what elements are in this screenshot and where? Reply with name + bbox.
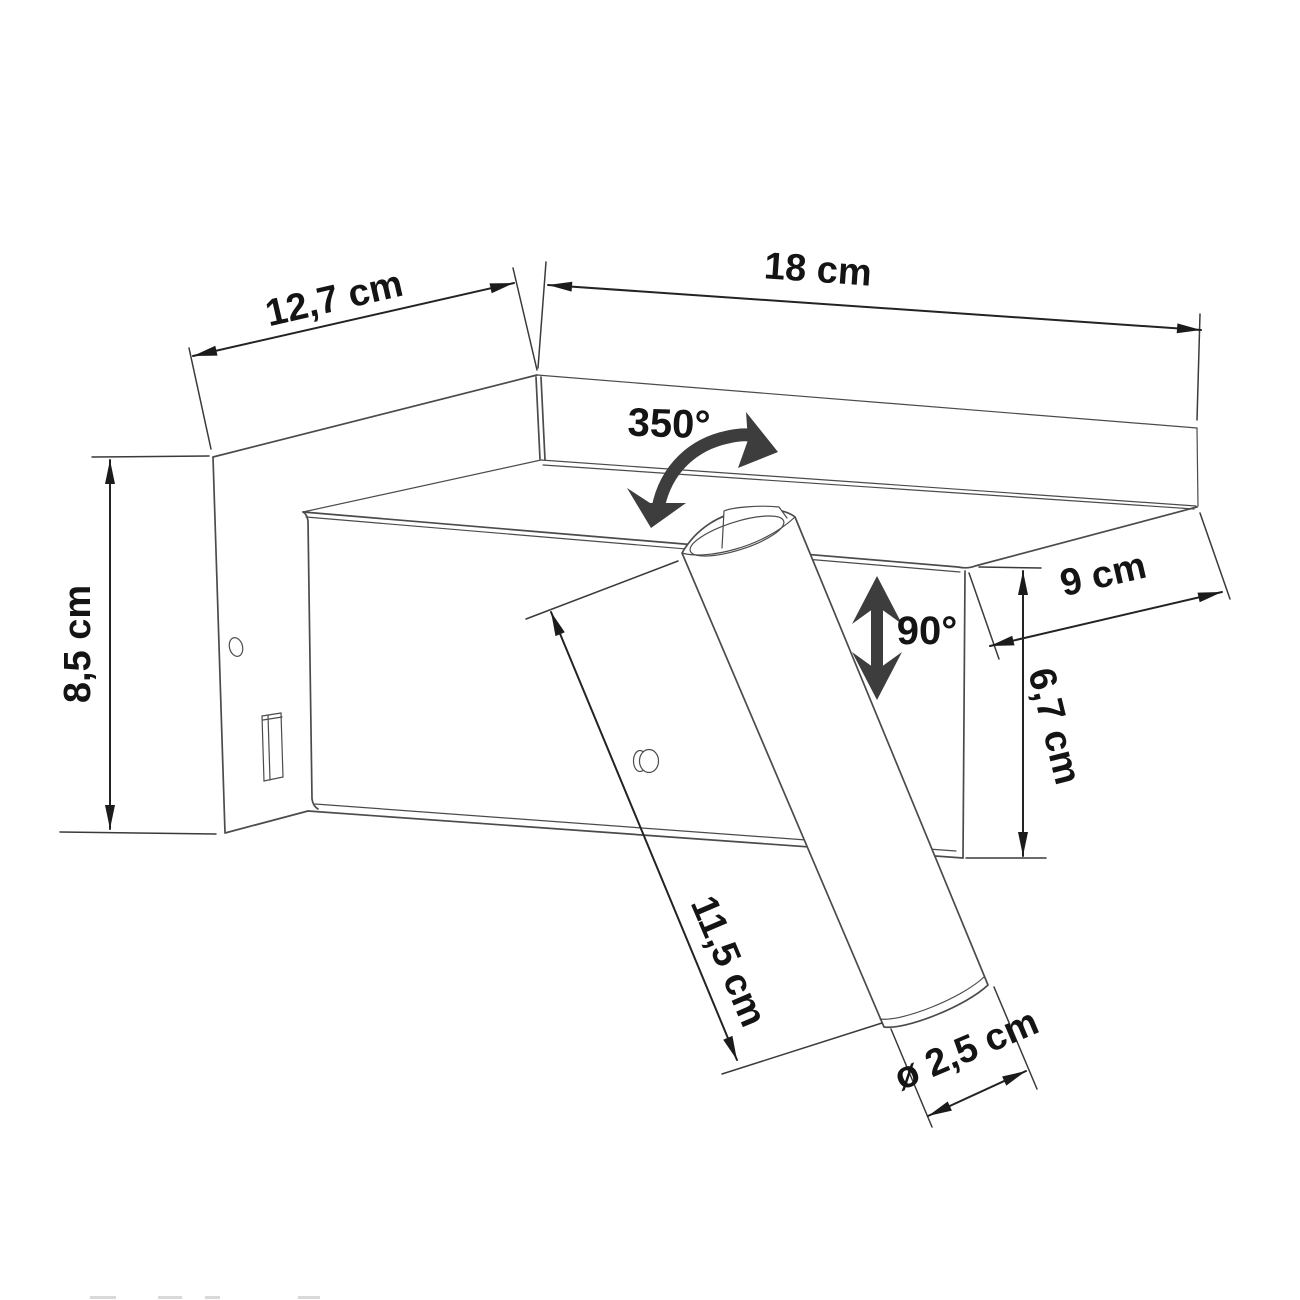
shelf-front-edge-inner — [306, 517, 960, 572]
shelf-depth-label: 9 cm — [1056, 545, 1150, 605]
back-panel-right-edge — [1197, 428, 1198, 506]
dim-housing-height: 6,7 cm — [966, 567, 1089, 858]
housing-left-edge — [303, 512, 318, 809]
housing-right-edge — [963, 571, 965, 858]
usb-port — [262, 713, 283, 781]
dim-plate-depth: 12,7 cm — [189, 263, 537, 449]
dim-shelf-depth: 9 cm — [969, 513, 1230, 659]
wall-plate-corner-edge — [536, 377, 545, 460]
housing-height-label: 6,7 cm — [1019, 664, 1088, 789]
power-button — [634, 750, 659, 773]
swivel-angle-label: 350° — [627, 401, 711, 448]
tilt-angle-label: 90° — [897, 609, 958, 653]
total-width-label: 18 cm — [763, 245, 873, 294]
tilt-indicator: 90° — [852, 576, 957, 700]
wall-plate — [213, 375, 545, 833]
wall-plate-outline — [213, 375, 537, 833]
screw-hole — [227, 636, 244, 658]
dim-plate-height: 8,5 cm — [57, 456, 216, 834]
dim-total-width: 18 cm — [538, 245, 1201, 420]
shelf-left-junction — [303, 460, 541, 512]
lamp-dimension-diagram: 350° 90° 12,7 cm 18 cm 8,5 cm 9 cm — [0, 0, 1300, 1300]
plate-height-label: 8,5 cm — [57, 585, 99, 703]
technical-drawing-page: 350° 90° 12,7 cm 18 cm 8,5 cm 9 cm — [0, 0, 1300, 1300]
bottom-crop-artifacts — [90, 1296, 320, 1299]
